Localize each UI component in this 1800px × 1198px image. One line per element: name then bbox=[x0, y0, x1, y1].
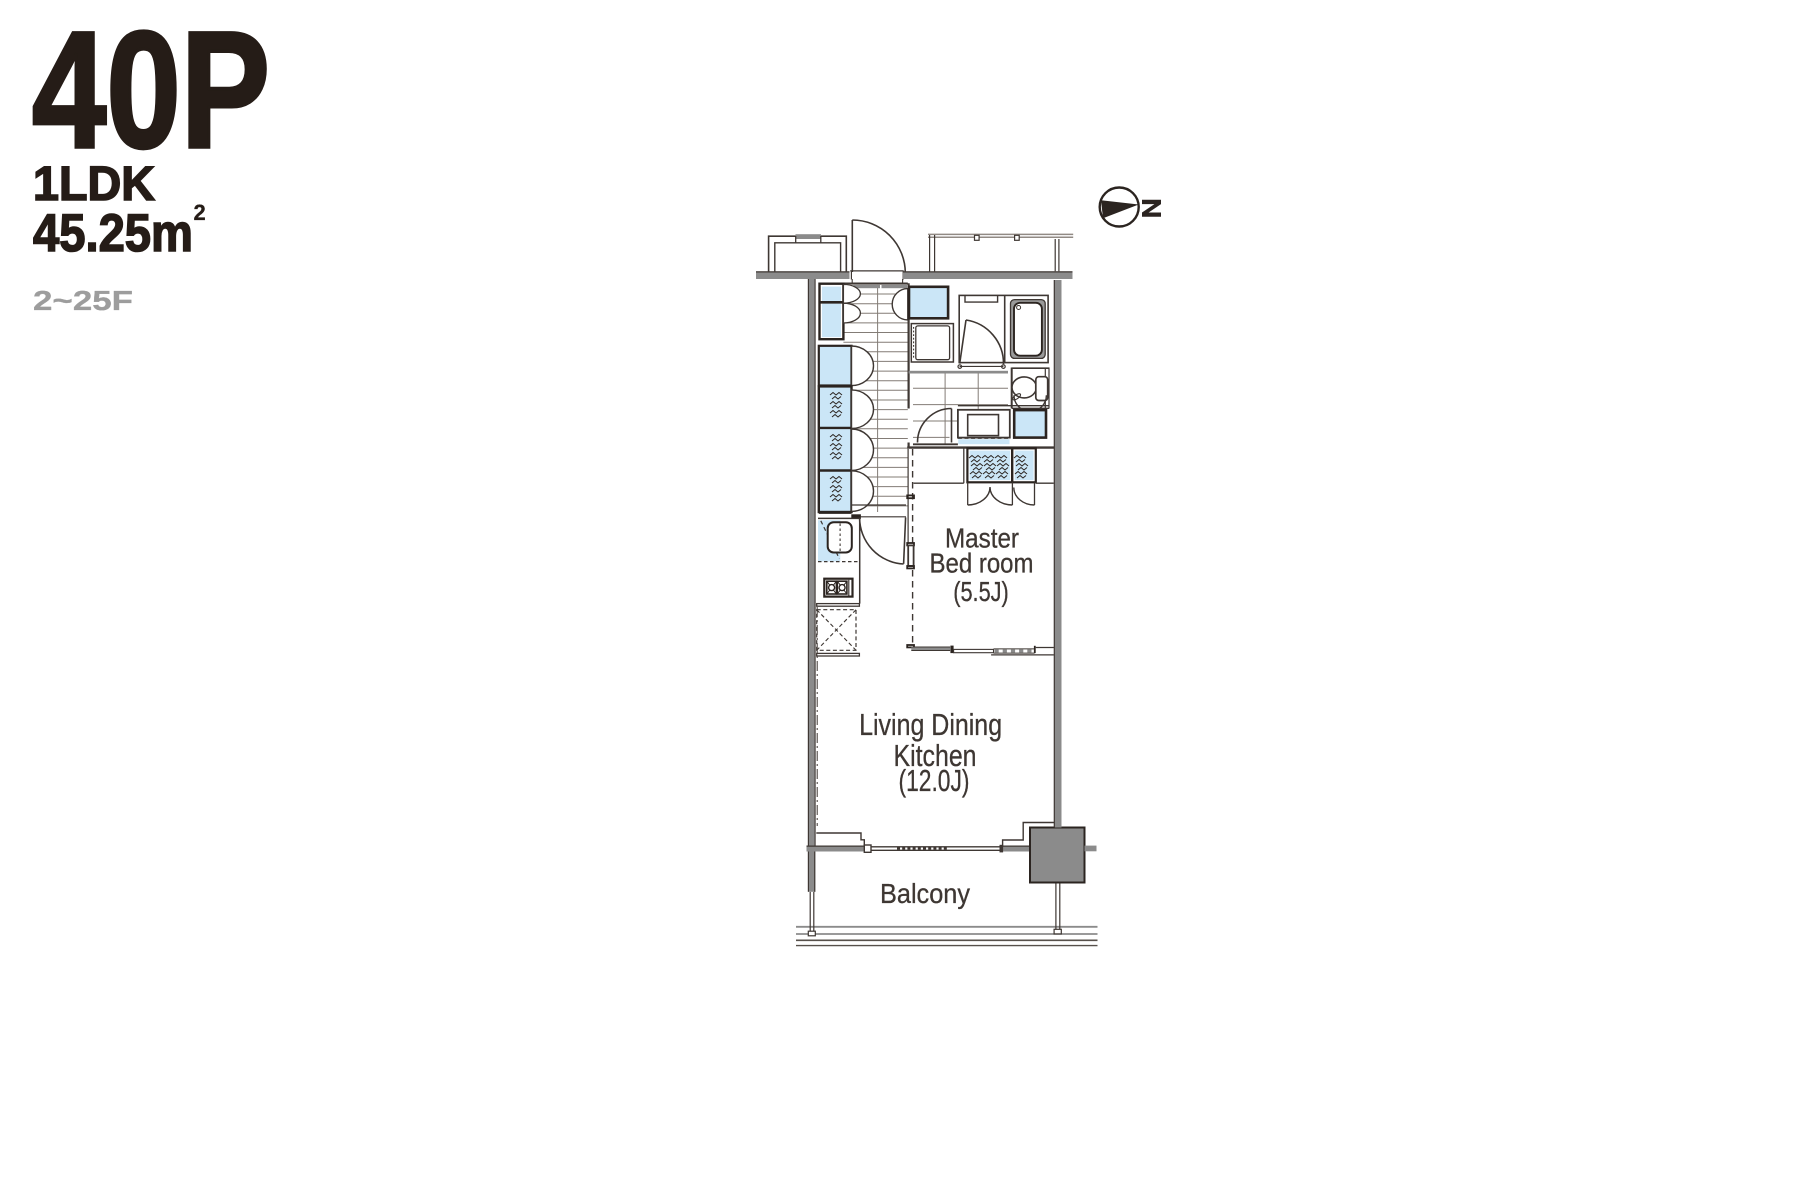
svg-text:2~25F: 2~25F bbox=[33, 285, 133, 316]
svg-text:45.25m: 45.25m bbox=[33, 204, 193, 263]
svg-text:Balcony: Balcony bbox=[880, 878, 970, 909]
svg-text:2: 2 bbox=[194, 200, 206, 225]
svg-text:Bed room: Bed room bbox=[930, 548, 1034, 579]
svg-text:Living Dining: Living Dining bbox=[859, 707, 1002, 742]
svg-text:(12.0J): (12.0J) bbox=[899, 763, 970, 798]
svg-text:(5.5J): (5.5J) bbox=[953, 576, 1009, 607]
svg-text:40P: 40P bbox=[32, 0, 270, 183]
